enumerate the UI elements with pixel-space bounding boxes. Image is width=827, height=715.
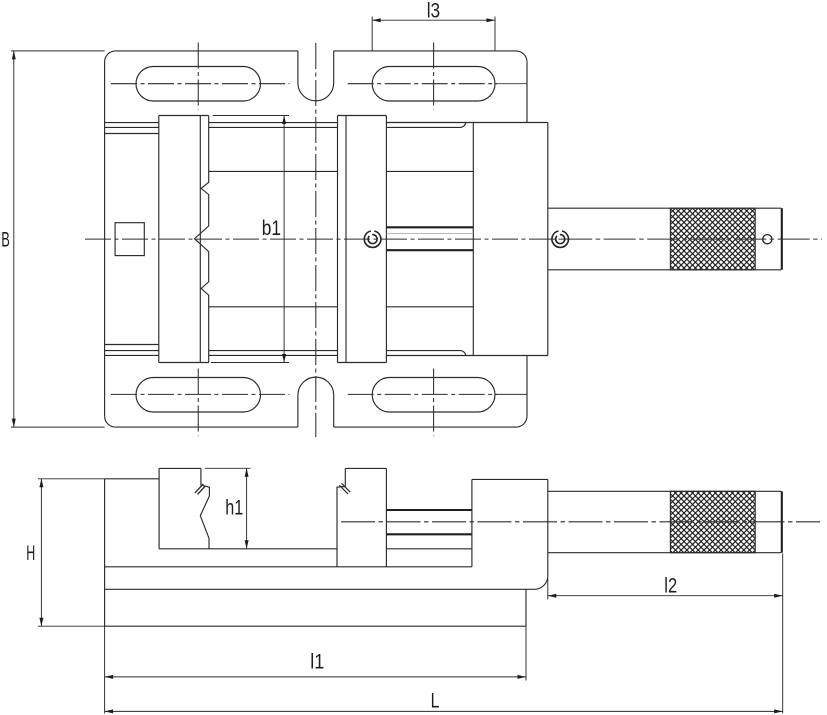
svg-text:l2: l2 xyxy=(664,574,677,597)
svg-text:B: B xyxy=(1,228,10,251)
svg-text:H: H xyxy=(26,542,35,565)
svg-text:L: L xyxy=(431,690,440,713)
svg-text:l1: l1 xyxy=(310,650,324,673)
svg-text:h1: h1 xyxy=(225,497,243,520)
svg-text:l3: l3 xyxy=(427,0,441,23)
svg-text:b1: b1 xyxy=(262,217,281,240)
